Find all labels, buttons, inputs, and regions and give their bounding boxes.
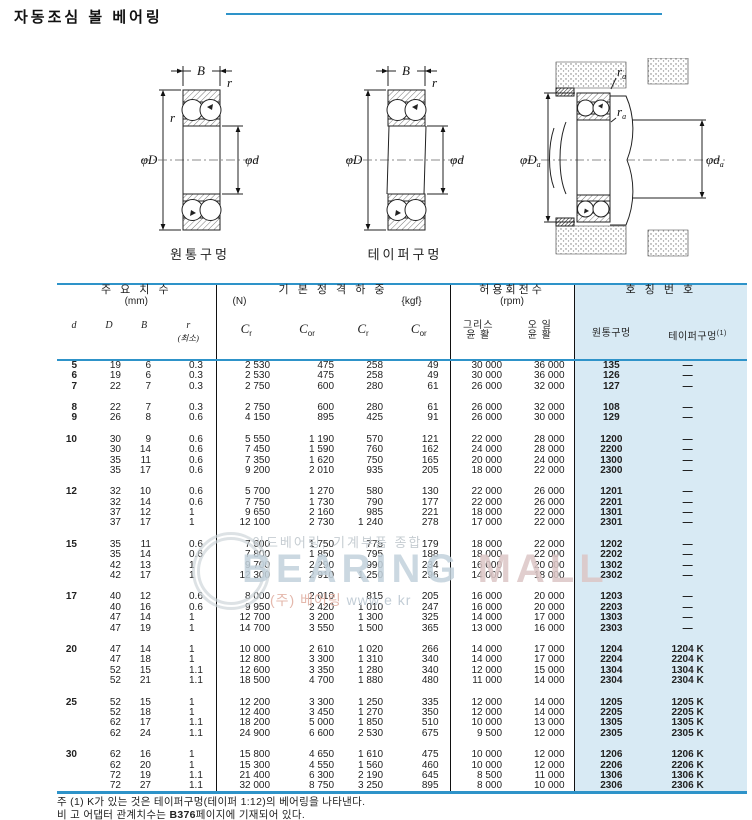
table-cell: 2200 [574,445,648,455]
table-cell: 17 000 [506,613,574,623]
table-cell: 7 800 [216,550,276,560]
table-cell: 221 [388,508,450,518]
table-cell: 296 [388,571,450,581]
table-cell: 2302 [574,571,648,581]
table-cell: 24 000 [450,445,506,455]
table-cell: 15 800 [216,750,276,760]
table-row: 1232100.65 7001 27058013022 00026 000120… [57,487,747,497]
table-cell: 62 [91,750,127,760]
table-cell: 15 [57,540,91,550]
col-cor-kgf: Cor [388,321,450,360]
table-cell: — [648,466,747,476]
table-cell: 340 [388,666,450,676]
table-cell: — [648,603,747,613]
table-cell: 12 000 [506,729,574,739]
table-cell: 258 [338,371,388,381]
table-cell: 18 200 [216,718,276,728]
col-cor-n: Cor [276,321,338,360]
table-cell: 1303 [574,613,648,623]
table-cell: 13 000 [506,718,574,728]
table-cell: 2 530 [338,729,388,739]
table-cell: 1 610 [338,750,388,760]
table-cell: 18 000 [450,550,506,560]
table-cell: 16 [127,750,161,760]
table-cell: — [648,403,747,413]
table-cell: 895 [276,413,338,423]
table-cell: 1 300 [338,613,388,623]
table-cell: 17 [57,592,91,602]
table-cell: 234 [388,560,450,570]
table-cell [57,666,91,676]
table-cell [57,560,91,570]
table-cell: — [648,445,747,455]
table-cell: 10 000 [450,750,506,760]
table-cell: 188 [388,550,450,560]
table-cell: — [648,518,747,528]
table-cell: 49 [388,360,450,371]
table-cell: 6 [127,360,161,371]
table-cell: 165 [388,455,450,465]
table-cell: 645 [388,771,450,781]
table-cell: 126 [574,371,648,381]
table-cell: 1.1 [161,718,216,728]
table-cell: 2 010 [276,466,338,476]
table-cell: 47 [91,623,127,633]
table-cell: 27 [127,781,161,793]
table-cell: — [648,623,747,633]
table-cell: 24 900 [216,729,276,739]
group-spacer-row [57,634,747,645]
table-cell [57,771,91,781]
table-row: 6220115 3004 5501 56046010 00012 0002206… [57,760,747,770]
table-cell: 1 500 [338,623,388,633]
table-cell: 12 [57,487,91,497]
table-row: 32140.67 7501 73079017722 00026 0002201— [57,498,747,508]
table-cell: 7 [57,381,91,391]
col-cr-kgf: Cr [338,321,388,360]
table-cell: 16 000 [506,623,574,633]
table-cell: 510 [388,718,450,728]
table-cell: 2 750 [216,381,276,391]
table-cell: 580 [338,487,388,497]
col-D: D [91,321,127,360]
table-row: 92680.64 1508954259126 00030 000129— [57,413,747,423]
table-cell: 425 [338,413,388,423]
table-cell: — [648,613,747,623]
table-cell: 30 [91,445,127,455]
table-cell: 1.1 [161,729,216,739]
table-cell: 280 [338,381,388,391]
group-spacer-row [57,739,747,750]
table-cell: 1 850 [338,718,388,728]
table-cell: 3 200 [276,613,338,623]
table-cell [57,550,91,560]
table-cell: 2305 [574,729,648,739]
header-limiting-speed: 허용회전수 (rpm) [450,284,574,321]
table-cell: 26 000 [450,381,506,391]
table-cell: 4 700 [276,676,338,686]
table-row: 35170.69 2002 01093520518 00022 0002300— [57,466,747,476]
table-row: 5218112 4003 4501 27035012 00014 0002205… [57,708,747,718]
table-cell: — [648,571,747,581]
table-cell: 365 [388,623,450,633]
table-row: 52151.112 6003 3501 28034012 00015 00013… [57,666,747,676]
table-cell: 9 500 [450,729,506,739]
table-cell [57,518,91,528]
table-cell: 32 000 [216,781,276,793]
table-cell: 32 000 [506,381,574,391]
table-cell: 32 [91,487,127,497]
table-row: 72271.132 0008 7503 2508958 00010 000230… [57,781,747,793]
table-cell: 480 [388,676,450,686]
table-cell: 28 000 [506,445,574,455]
group-spacer-row [57,392,747,403]
dim-label-phiD: φD [346,152,363,167]
table-cell: 350 [388,708,450,718]
table-cell: 52 [91,676,127,686]
table-cell: 0.6 [161,445,216,455]
table-cell: 19 [91,360,127,371]
table-cell: 340 [388,655,450,665]
table-cell: 35 [91,540,127,550]
table-cell: 40 [91,603,127,613]
table-cell: — [648,487,747,497]
table-cell: 1305 [574,718,648,728]
table-row: 421319 7002 29099023416 00020 0001302— [57,560,747,570]
table-cell: 1 590 [276,445,338,455]
col-cr-n: Cr [216,321,276,360]
dim-label-phiD: φD [141,152,158,167]
table-row: 61960.32 5304752584930 00036 000126— [57,371,747,381]
table-cell [57,729,91,739]
table-cell: 14 000 [450,571,506,581]
col-d: d [57,321,91,360]
table-cell: 42 [91,571,127,581]
table-cell: 0.6 [161,413,216,423]
dim-label-r-top: r [227,75,233,90]
table-cell: 17 [127,518,161,528]
table-cell: 72 [91,771,127,781]
header-section-row: 주 요 치 수 (mm) 기 본 정 격 하 중 (N){kgf} 허용회전수 … [57,284,747,321]
table-cell: 0.3 [161,371,216,381]
table-cell: 475 [276,371,338,381]
table-cell: 22 [91,403,127,413]
header-bearing-numbers: 호 칭 번 호 [574,284,747,321]
table-cell: 8 000 [450,781,506,793]
table-row: 72191.121 4006 3002 1906458 50011 000130… [57,771,747,781]
table-cell: — [648,455,747,465]
table-cell: 6 [127,371,161,381]
table-cell: — [648,560,747,570]
table-cell: — [648,498,747,508]
table-cell: 10 [57,435,91,445]
table-cell: 3 550 [276,623,338,633]
table-cell: — [648,413,747,423]
table-cell: 6 600 [276,729,338,739]
col-tapered-bore: 테이퍼구멍(1) [648,321,747,360]
table-cell: 22 000 [506,466,574,476]
table-cell: — [648,381,747,391]
table-cell: 1305 K [648,718,747,728]
col-grease: 그리스윤 활 [450,321,506,360]
table-row: 4718112 8003 3001 31034014 00017 0002204… [57,655,747,665]
figure-mounted-bearing: φDa φda ra ra [520,58,730,258]
table-cell: 91 [388,413,450,423]
col-B: B [127,321,161,360]
table-cell [57,466,91,476]
table-cell: 14 [127,613,161,623]
table-cell: 1 [161,518,216,528]
table-row: 4217112 3002 9101 25029614 00018 0002302… [57,571,747,581]
table-cell: 22 000 [506,518,574,528]
table-cell: 1206 K [648,750,747,760]
col-r: r(최소) [161,321,216,360]
table-cell [57,455,91,465]
table-cell [57,613,91,623]
table-row: 82270.32 7506002806126 00032 000108— [57,403,747,413]
page-title: 자동조심 볼 베어링 [14,6,163,27]
table-cell [57,623,91,633]
table-cell: 205 [388,466,450,476]
col-oil: 오 일윤 활 [506,321,574,360]
table-cell: — [648,540,747,550]
table-cell [57,508,91,518]
table-cell: 18 000 [450,466,506,476]
table-cell: 2 530 [216,371,276,381]
table-cell: 1 240 [338,518,388,528]
table-cell: 14 [127,445,161,455]
table-cell [57,655,91,665]
table-cell: 20 [57,645,91,655]
table-cell: 7 [127,403,161,413]
header-column-row: d D B r(최소) Cr Cor Cr Cor 그리스윤 활 오 일윤 활 … [57,321,747,360]
spec-table-body: 51960.32 5304752584930 00036 000135—6196… [57,360,747,793]
table-cell: 21 [127,676,161,686]
table-cell: 130 [388,487,450,497]
table-cell: 1 880 [338,676,388,686]
table-cell: 2 730 [276,518,338,528]
table-cell: 7 [127,381,161,391]
table-cell: 62 [91,760,127,770]
table-cell: 2304 [574,676,648,686]
figure-tapered-bore: B r φD φd [330,58,480,248]
table-row: 35140.67 8001 85079518818 00022 0002202— [57,550,747,560]
header-dimensions: 주 요 치 수 (mm) [57,284,216,321]
table-cell: 30 [91,435,127,445]
table-cell: 325 [388,613,450,623]
table-cell: 675 [388,729,450,739]
table-cell: — [648,371,747,381]
table-cell: 2305 K [648,729,747,739]
table-cell: 177 [388,498,450,508]
table-cell: 4 650 [276,750,338,760]
table-cell: 6 [57,371,91,381]
table-cell: 26 [91,413,127,423]
table-cell: 52 [91,697,127,707]
table-cell: 62 [91,718,127,728]
table-cell: 2306 K [648,781,747,793]
table-cell: 32 [91,498,127,508]
table-row: 103090.65 5501 19057012122 00028 0001200… [57,435,747,445]
table-row: 40160.69 9502 4201 01024716 00020 000220… [57,603,747,613]
table-row: 51960.32 5304752584930 00036 000135— [57,360,747,371]
table-cell [57,676,91,686]
table-cell: 1 [161,613,216,623]
table-cell: 0.6 [161,466,216,476]
table-cell: 760 [338,445,388,455]
table-cell: 127 [574,381,648,391]
dim-label-phid: φd [245,152,259,167]
table-cell [57,445,91,455]
table-cell: 10 000 [450,718,506,728]
table-cell: 1.1 [161,781,216,793]
group-spacer-row [57,476,747,487]
table-row: 306216115 8004 6501 61047510 00012 00012… [57,750,747,760]
table-row: 255215112 2003 3001 25033512 00014 00012… [57,697,747,707]
table-cell: 2202 [574,550,648,560]
table-cell: 40 [91,592,127,602]
caption-cylindrical-bore: 원통구멍 [125,244,275,263]
col-cylindrical-bore: 원통구멍 [574,321,648,360]
table-cell: 36 000 [506,371,574,381]
table-cell: 2300 [574,466,648,476]
table-row: 62241.124 9006 6002 5306759 50012 000230… [57,729,747,739]
table-cell: 26 000 [506,487,574,497]
table-cell: 18 500 [216,676,276,686]
table-row: 72270.32 7506002806126 00032 000127— [57,381,747,391]
table-cell: 475 [388,750,450,760]
table-row: 4719114 7003 5501 50036513 00016 0002303… [57,623,747,633]
table-cell: 12 000 [506,750,574,760]
table-cell: — [648,550,747,560]
table-cell [57,603,91,613]
table-cell [57,760,91,770]
table-cell [57,781,91,793]
table-cell: 2303 [574,623,648,633]
table-cell: 11 000 [450,676,506,686]
table-row: 1740120.68 0002 01081520516 00020 000120… [57,592,747,602]
table-row: 30140.67 4501 59076016224 00028 0002200— [57,445,747,455]
table-cell [57,718,91,728]
table-cell: 121 [388,435,450,445]
table-cell: 1.1 [161,676,216,686]
table-cell: 1 270 [276,487,338,497]
table-cell: 2306 [574,781,648,793]
table-row: 62171.118 2005 0001 85051010 00013 00013… [57,718,747,728]
table-cell: 14 000 [506,676,574,686]
table-cell: 49 [388,371,450,381]
table-cell: 1 250 [338,571,388,581]
table-cell: 22 000 [506,550,574,560]
table-cell: 17 [127,718,161,728]
table-cell: 1 [161,571,216,581]
table-cell: 2301 [574,518,648,528]
dim-label-B: B [197,63,205,78]
table-cell: 13 000 [450,623,506,633]
table-cell: 17 [127,571,161,581]
header-load-ratings: 기 본 정 격 하 중 (N){kgf} [216,284,450,321]
table-row: 1535110.67 6001 75077517918 00022 000120… [57,540,747,550]
footnote-2: 비 고 어댑터 관계치수는 B376페이지에 기재되어 있다. [57,807,305,820]
table-row: 204714110 0002 6101 02026614 00017 00012… [57,645,747,655]
table-cell: 0.3 [161,381,216,391]
table-cell: 4 150 [216,413,276,423]
table-cell: 335 [388,697,450,707]
table-row: 35110.67 3501 62075016520 00024 0001300— [57,455,747,465]
dim-label-phid: φd [450,152,464,167]
table-cell: 22 [91,381,127,391]
figure-cylindrical-bore: B r r φD φd [125,58,275,248]
table-cell: 42 [91,560,127,570]
table-cell: 30 000 [450,371,506,381]
table-cell: 18 000 [506,571,574,581]
table-cell: 9 200 [216,466,276,476]
table-cell: 35 [91,466,127,476]
table-cell: 266 [388,645,450,655]
table-cell: 35 [91,550,127,560]
table-cell: 17 000 [450,518,506,528]
table-cell: 37 [91,518,127,528]
table-cell: 12 300 [216,571,276,581]
table-cell [57,498,91,508]
table-cell: 9 [57,413,91,423]
table-cell: 35 [91,455,127,465]
table-cell: — [648,360,747,371]
table-cell: 72 [91,781,127,793]
table-cell: — [648,508,747,518]
table-cell: 61 [388,381,450,391]
dim-label-phiDa: φDa [520,152,541,169]
spec-table: 주 요 치 수 (mm) 기 본 정 격 하 중 (N){kgf} 허용회전수 … [57,283,747,794]
table-cell: 1 [161,623,216,633]
table-cell: 12 100 [216,518,276,528]
table-cell: 0.6 [161,487,216,497]
table-row: 3717112 1002 7301 24027817 00022 0002301… [57,518,747,528]
table-cell: 7 450 [216,445,276,455]
table-cell: 5 700 [216,487,276,497]
table-cell: 52 [91,666,127,676]
table-cell: 460 [388,760,450,770]
table-cell: 2304 K [648,676,747,686]
table-cell: 30 [57,750,91,760]
table-cell: 8 [127,413,161,423]
caption-tapered-bore: 테이퍼구멍 [330,244,480,263]
table-cell: 24 [127,729,161,739]
table-cell: 0.6 [161,550,216,560]
catalog-page: 자동조심 볼 베어링 [0,0,752,820]
table-cell: 62 [91,729,127,739]
table-cell: 205 [388,592,450,602]
table-cell: 52 [91,708,127,718]
table-cell: 129 [574,413,648,423]
table-cell: 14 [127,550,161,560]
table-cell: 2 910 [276,571,338,581]
table-cell: 22 000 [450,487,506,497]
table-cell: 935 [338,466,388,476]
table-cell: 1201 [574,487,648,497]
table-row: 4714112 7003 2001 30032514 00017 0001303… [57,613,747,623]
dim-label-r-left: r [170,110,176,125]
table-cell: 5 000 [276,718,338,728]
table-cell: 61 [388,403,450,413]
table-cell: 30 000 [506,413,574,423]
table-cell: 26 000 [450,413,506,423]
table-cell: 8 750 [276,781,338,793]
group-spacer-row [57,529,747,540]
table-cell: 1 850 [276,550,338,560]
table-cell: 12 700 [216,613,276,623]
table-cell: 47 [91,645,127,655]
